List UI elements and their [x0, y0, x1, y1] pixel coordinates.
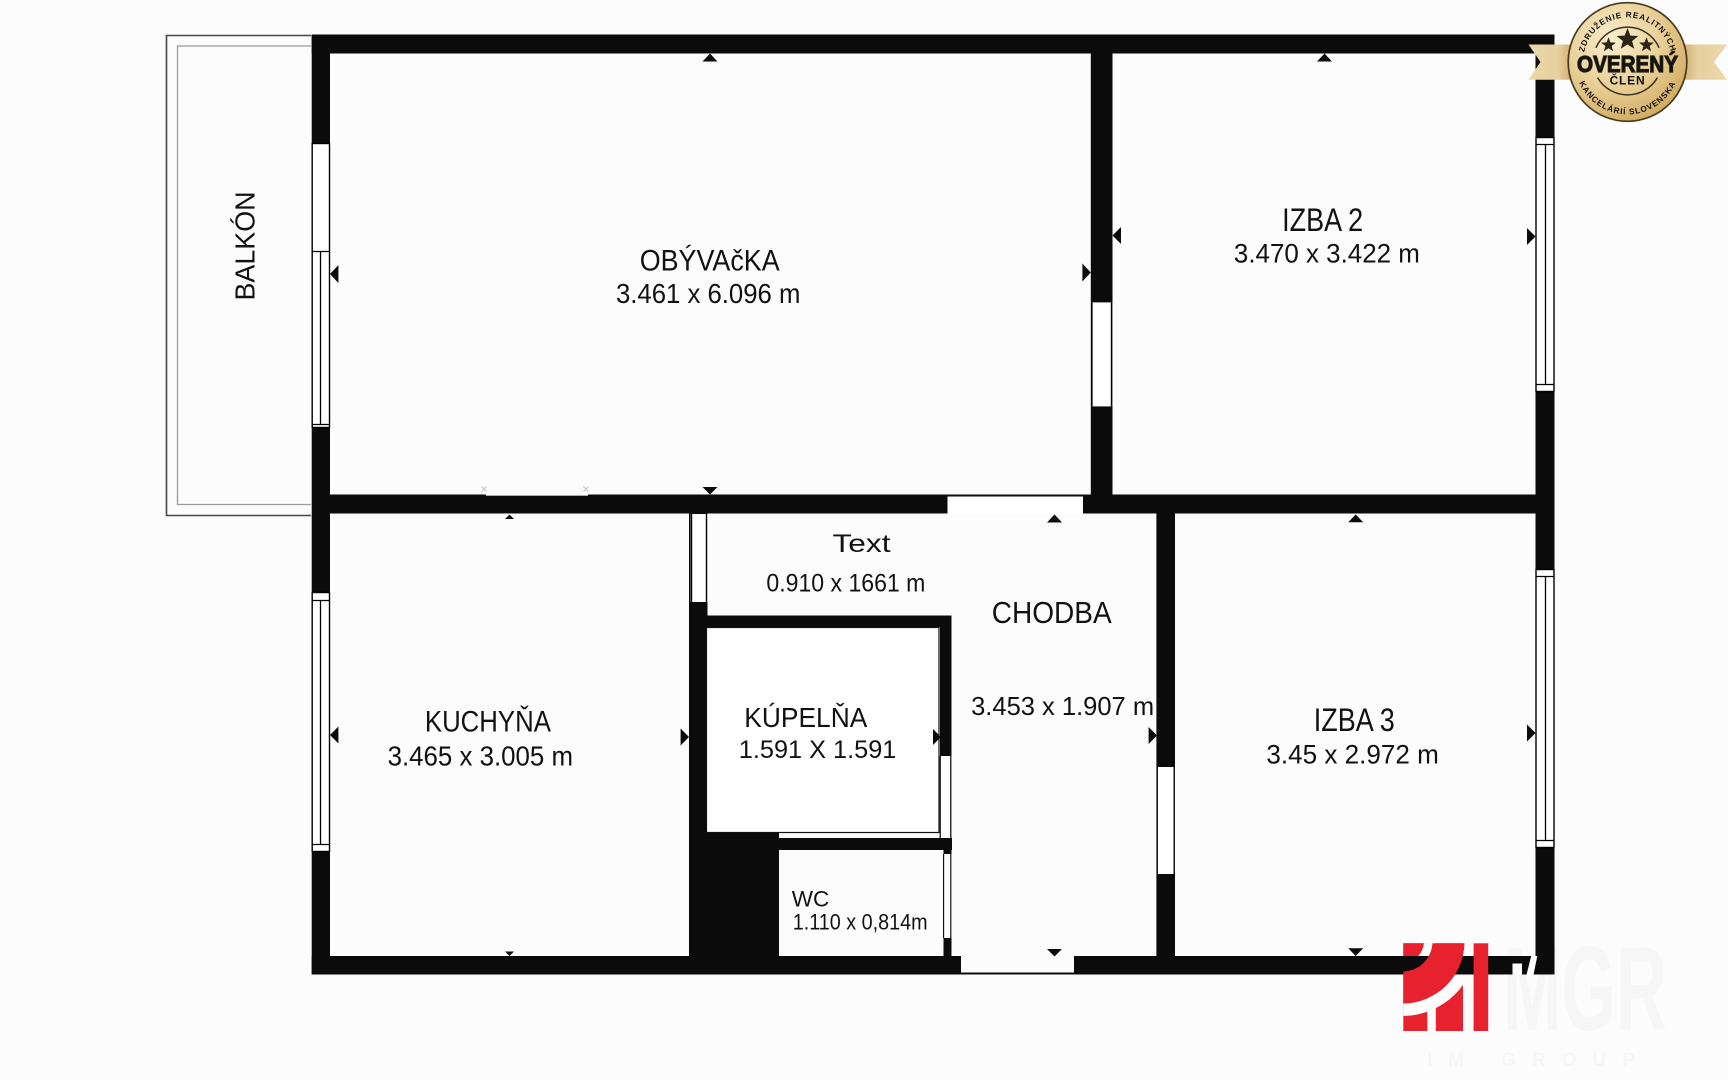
svg-text:3.465 x 3.005 m: 3.465 x 3.005 m — [388, 741, 573, 772]
svg-text:1.591 X 1.591: 1.591 X 1.591 — [739, 736, 897, 764]
svg-text:CHODBA: CHODBA — [992, 595, 1112, 630]
svg-text:IZBA 2: IZBA 2 — [1282, 202, 1363, 238]
svg-text:OBÝVAčKA: OBÝVAčKA — [640, 245, 780, 278]
svg-text:IZBA 3: IZBA 3 — [1314, 702, 1395, 738]
svg-text:3.453 x 1.907 m: 3.453 x 1.907 m — [971, 691, 1154, 721]
svg-text:IM GROUP: IM GROUP — [1427, 1050, 1651, 1071]
svg-text:KUCHYŇA: KUCHYŇA — [425, 706, 551, 739]
svg-text:Text: Text — [833, 530, 891, 558]
svg-text:3.470 x 3.422 m: 3.470 x 3.422 m — [1234, 239, 1420, 269]
svg-text:0.910 x 1661 m: 0.910 x 1661 m — [766, 570, 925, 598]
svg-text:KÚPELŇA: KÚPELŇA — [744, 702, 867, 733]
svg-text:3.45 x 2.972 m: 3.45 x 2.972 m — [1266, 739, 1438, 769]
svg-text:1.110 x 0,814m: 1.110 x 0,814m — [793, 910, 928, 935]
svg-text:MGR: MGR — [1503, 921, 1667, 1055]
svg-text:ČLEN: ČLEN — [1610, 73, 1646, 88]
svg-text:3.461 x 6.096 m: 3.461 x 6.096 m — [616, 278, 801, 309]
svg-text:WC: WC — [792, 887, 830, 912]
svg-text:BALKÓN: BALKÓN — [229, 192, 260, 301]
